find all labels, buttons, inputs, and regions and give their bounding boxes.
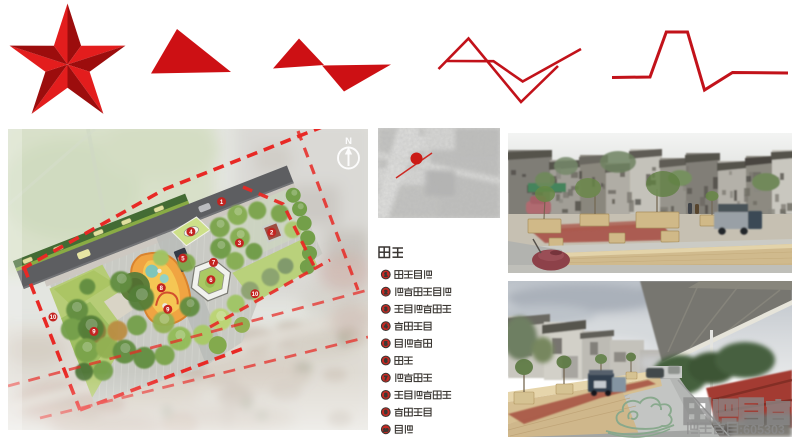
svg-text:N: N <box>345 136 352 147</box>
svg-text:5: 5 <box>384 341 387 347</box>
svg-text:2: 2 <box>384 290 387 296</box>
svg-text:1: 1 <box>384 273 387 279</box>
svg-text:9: 9 <box>384 410 387 416</box>
svg-text:10: 10 <box>252 292 259 298</box>
svg-text:6: 6 <box>384 359 387 365</box>
svg-text:3: 3 <box>384 307 387 313</box>
svg-text::605303: :605303 <box>739 423 785 437</box>
svg-text:8: 8 <box>384 393 387 399</box>
svg-text:10: 10 <box>383 427 389 433</box>
svg-text:7: 7 <box>384 376 387 382</box>
svg-text:10: 10 <box>50 315 57 321</box>
